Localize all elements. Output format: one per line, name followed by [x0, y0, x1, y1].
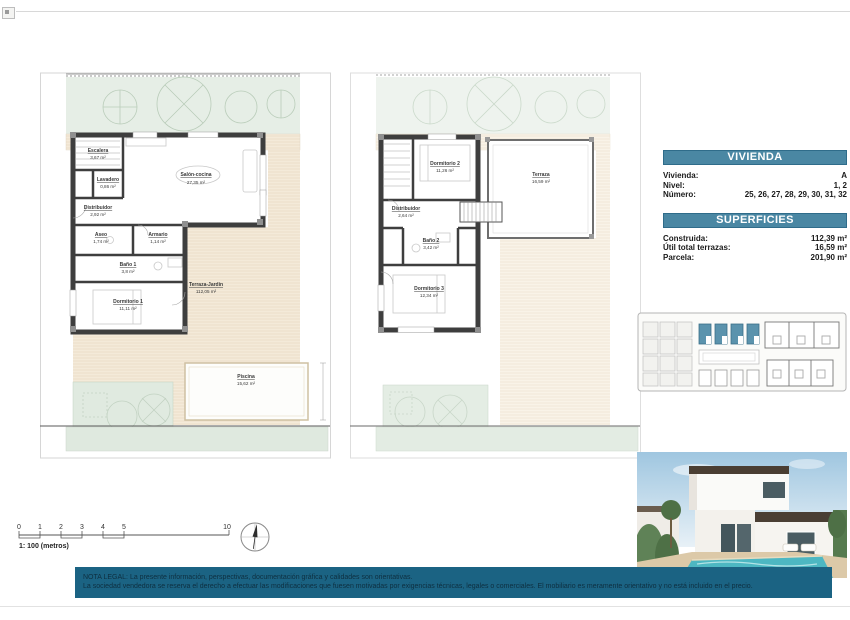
- pool: Piscina 15,62 m²: [185, 363, 326, 420]
- room-label-piscina: Piscina: [237, 374, 255, 380]
- scale-tick-3: 3: [80, 524, 84, 531]
- scale-tick-0: 0: [17, 524, 21, 531]
- site-plan: [637, 312, 847, 392]
- superficies-rows: Construida: 112,39 m² Útil total terraza…: [663, 234, 847, 263]
- site-common-area: [699, 350, 759, 364]
- room-label-escalera: Escalera: [88, 148, 109, 154]
- row-value: 1, 2: [834, 181, 847, 191]
- site-units-left: [643, 322, 692, 386]
- room-label-distribuidor2: Distribuidor: [392, 206, 420, 212]
- railing: [460, 202, 502, 222]
- row-label: Nivel:: [663, 181, 685, 191]
- row-label: Parcela:: [663, 253, 694, 263]
- room-area-dorm2: 11,26 m²: [436, 168, 454, 173]
- room-label-dorm3: Dormitorio 3: [414, 286, 444, 292]
- room-label-salon: Salón-cocina: [180, 172, 211, 178]
- room-label-dorm1: Dormitorio 1: [113, 299, 143, 305]
- room-label-dorm2: Dormitorio 2: [430, 161, 460, 167]
- north-arrow-icon: [238, 520, 272, 554]
- row-value: 16,59 m²: [815, 243, 847, 253]
- info-panel: VIVIENDA Vivienda: A Nivel: 1, 2 Número:…: [663, 150, 847, 262]
- scale-tick-10: 10: [223, 524, 231, 531]
- broken-image-icon: [2, 7, 15, 19]
- row-label: Construida:: [663, 234, 708, 244]
- page: Piscina 15,62 m²: [0, 0, 850, 620]
- room-area-aseo: 1,74 m²: [93, 239, 109, 244]
- superficies-header: SUPERFICIES: [663, 213, 847, 228]
- info-row-parcela: Parcela: 201,90 m²: [663, 253, 847, 263]
- room-area-terraza: 16,59 m²: [532, 179, 551, 184]
- room-label-terraza-jardin: Terraza-Jardín: [189, 282, 223, 288]
- scale-bar: 0 1 2 3 4 5 10 1: 100 (metros): [12, 520, 247, 552]
- vivienda-rows: Vivienda: A Nivel: 1, 2 Número: 25, 26, …: [663, 171, 847, 200]
- room-area-bano2: 3,42 m²: [423, 245, 439, 250]
- scale-caption: 1: 100 (metros): [19, 543, 69, 550]
- room-area-distribuidor2: 2,64 m²: [398, 213, 414, 218]
- room-label-bano1: Baño 1: [120, 262, 137, 268]
- legal-line-2: La sociedad vendedora se reserva el dere…: [83, 582, 832, 591]
- terrace-room: Terraza 16,59 m²: [485, 137, 594, 239]
- row-label: Útil total terrazas:: [663, 243, 731, 253]
- room-label-aseo: Aseo: [95, 232, 107, 238]
- room-area-salon: 27,35 m²: [187, 180, 206, 185]
- room-area-dorm3: 12,34 m²: [420, 293, 439, 298]
- room-area-dorm1: 11,11 m²: [119, 306, 137, 311]
- floor-plan-level-1: Piscina 15,62 m²: [38, 60, 333, 472]
- info-row-vivienda: Vivienda: A: [663, 171, 847, 181]
- room-area-distribuidor: 2,92 m²: [90, 212, 106, 217]
- info-row-util: Útil total terrazas: 16,59 m²: [663, 243, 847, 253]
- bottom-divider: [0, 606, 850, 607]
- info-row-numero: Número: 25, 26, 27, 28, 29, 30, 31, 32: [663, 190, 847, 200]
- vivienda-header: VIVIENDA: [663, 150, 847, 165]
- room-label-terraza: Terraza: [532, 172, 550, 178]
- scale-ticks: [19, 530, 229, 538]
- scale-tick-2: 2: [59, 524, 63, 531]
- floor-plan-level-2: Terraza 16,59 m²: [348, 60, 643, 472]
- scale-tick-1: 1: [38, 524, 42, 531]
- row-value: 112,39 m²: [811, 234, 847, 244]
- room-label-armario: Armario: [148, 232, 167, 238]
- row-value: 25, 26, 27, 28, 29, 30, 31, 32: [745, 190, 847, 200]
- room-area-terraza-jardin: 112,05 m²: [196, 289, 217, 294]
- row-value: A: [841, 171, 847, 181]
- room-label-distribuidor: Distribuidor: [84, 205, 112, 211]
- legal-line-1: NOTA LEGAL: La presente información, per…: [83, 573, 832, 582]
- row-value: 201,90 m²: [811, 253, 847, 263]
- room-label-bano2: Baño 2: [423, 238, 440, 244]
- scale-tick-5: 5: [122, 524, 126, 531]
- legal-note: NOTA LEGAL: La presente información, per…: [75, 567, 832, 598]
- room-label-lavadero: Lavadero: [97, 177, 119, 183]
- info-row-construida: Construida: 112,39 m²: [663, 234, 847, 244]
- room-area-bano1: 3,8 m²: [121, 269, 134, 274]
- villa-render-image: [637, 452, 847, 578]
- room-area-piscina: 15,62 m²: [237, 381, 256, 386]
- info-row-nivel: Nivel: 1, 2: [663, 181, 847, 191]
- scale-tick-4: 4: [101, 524, 105, 531]
- row-label: Vivienda:: [663, 171, 698, 181]
- top-divider: [16, 11, 850, 12]
- room-area-lavadero: 0,86 m²: [100, 184, 116, 189]
- room-area-armario: 1,14 m²: [150, 239, 166, 244]
- row-label: Número:: [663, 190, 696, 200]
- room-area-escalera: 3,67 m²: [90, 155, 106, 160]
